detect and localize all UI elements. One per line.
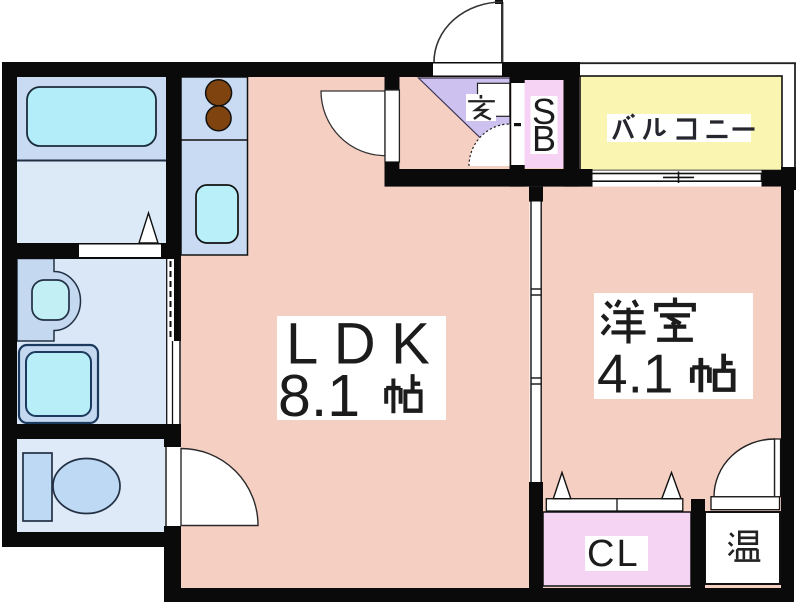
svg-text:CL: CL: [587, 533, 640, 575]
svg-text:4.1: 4.1: [597, 343, 673, 405]
svg-text:B: B: [532, 118, 556, 159]
svg-text:8.1: 8.1: [278, 363, 360, 429]
